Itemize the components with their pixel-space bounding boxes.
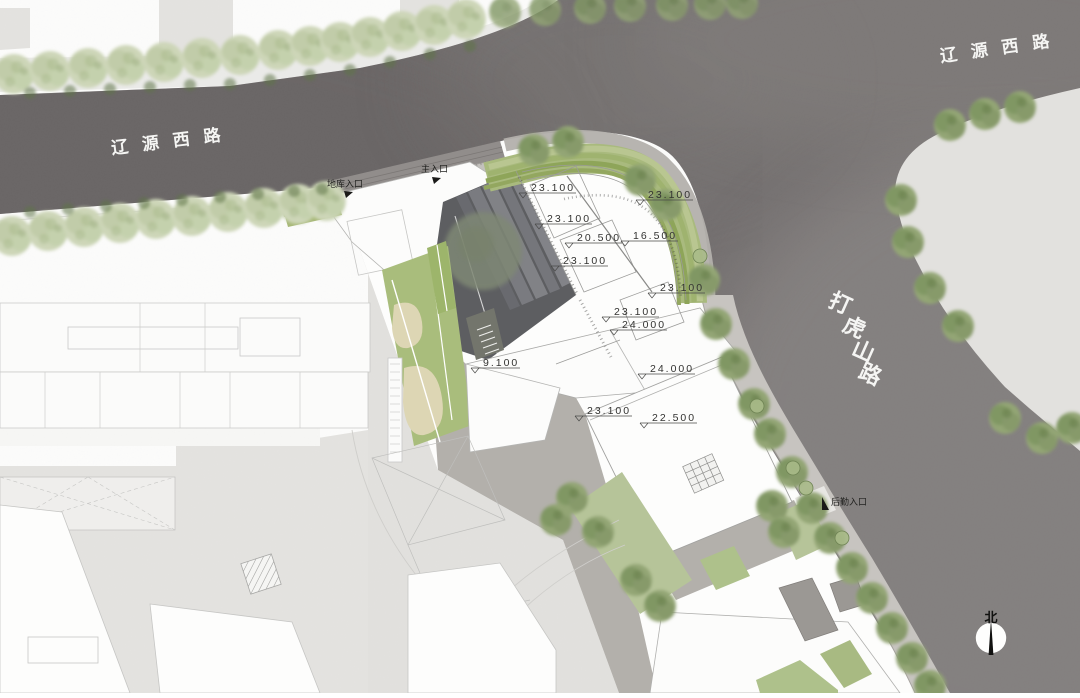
svg-text:24.000: 24.000	[650, 363, 694, 375]
svg-text:主入口: 主入口	[421, 163, 448, 174]
svg-text:23.100: 23.100	[547, 213, 591, 225]
svg-text:16.500: 16.500	[633, 230, 677, 242]
svg-text:北: 北	[984, 610, 997, 625]
svg-text:23.100: 23.100	[587, 405, 631, 417]
svg-text:24.000: 24.000	[622, 319, 666, 331]
svg-text:9.100: 9.100	[483, 357, 519, 369]
svg-text:23.100: 23.100	[563, 255, 607, 267]
svg-text:23.100: 23.100	[648, 189, 692, 201]
svg-text:22.500: 22.500	[652, 412, 696, 424]
svg-text:地库入口: 地库入口	[327, 178, 363, 189]
svg-text:20.500: 20.500	[577, 232, 621, 244]
svg-text:23.100: 23.100	[531, 182, 575, 194]
svg-text:23.100: 23.100	[614, 306, 658, 318]
svg-text:后勤入口: 后勤入口	[831, 496, 867, 507]
svg-text:23.100: 23.100	[660, 282, 704, 294]
